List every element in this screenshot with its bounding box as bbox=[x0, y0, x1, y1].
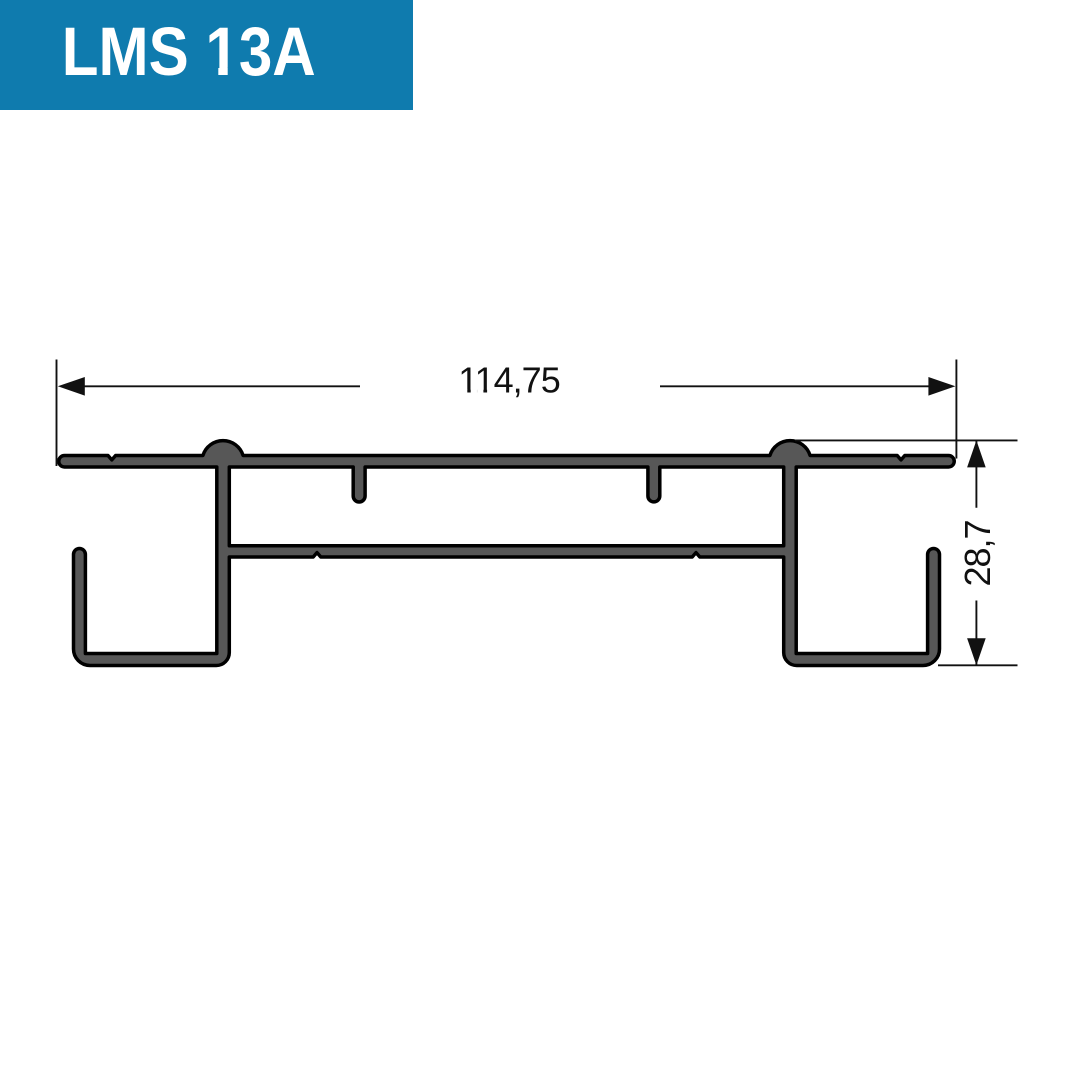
svg-text:28,7: 28,7 bbox=[957, 520, 998, 586]
svg-text:114,75: 114,75 bbox=[458, 360, 559, 401]
svg-text:LMS 13A: LMS 13A bbox=[62, 12, 316, 90]
